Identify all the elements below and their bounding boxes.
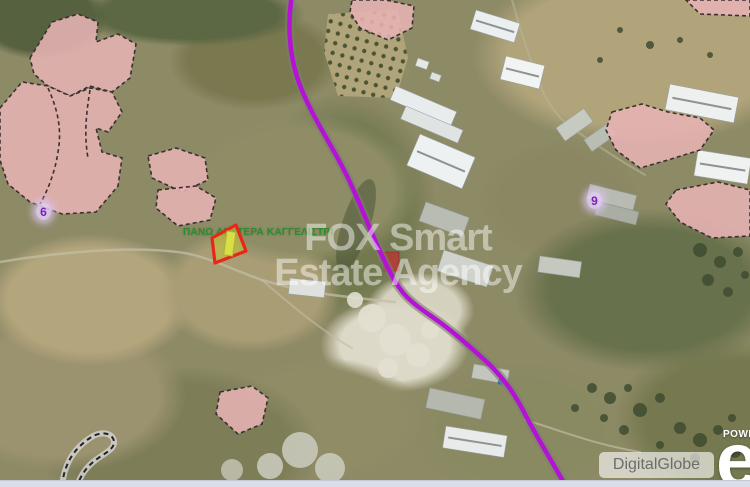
- attribution-badge: DigitalGlobe: [599, 452, 714, 478]
- zone-marker-6: 6: [36, 203, 51, 220]
- zone-polygon: [686, 0, 750, 16]
- dashed-parcel-outline: [62, 433, 114, 487]
- provider-logo-icon: e: [716, 423, 750, 487]
- watermark-line2: Estate Agency: [274, 254, 521, 292]
- zone-marker-label: 9: [591, 194, 598, 208]
- zone-polygon: [666, 182, 750, 238]
- zone-marker-9: 9: [587, 192, 602, 209]
- bottom-edge-strip: [0, 480, 750, 487]
- zone-polygon: [148, 148, 208, 192]
- zone-polygon: [0, 82, 122, 214]
- highlighted-parcel[interactable]: [212, 225, 246, 263]
- zone-marker-label: 6: [40, 205, 47, 219]
- map-canvas[interactable]: ΠΑΝΩ ΔΕΥΤΕΡΑ ΚΑΓΓΕΛΙΣΤΡΙ: [0, 0, 750, 487]
- zone-polygon: [156, 186, 216, 226]
- zone-polygon: [30, 14, 136, 96]
- zone-polygon: [216, 386, 268, 434]
- attribution-text: DigitalGlobe: [613, 456, 700, 474]
